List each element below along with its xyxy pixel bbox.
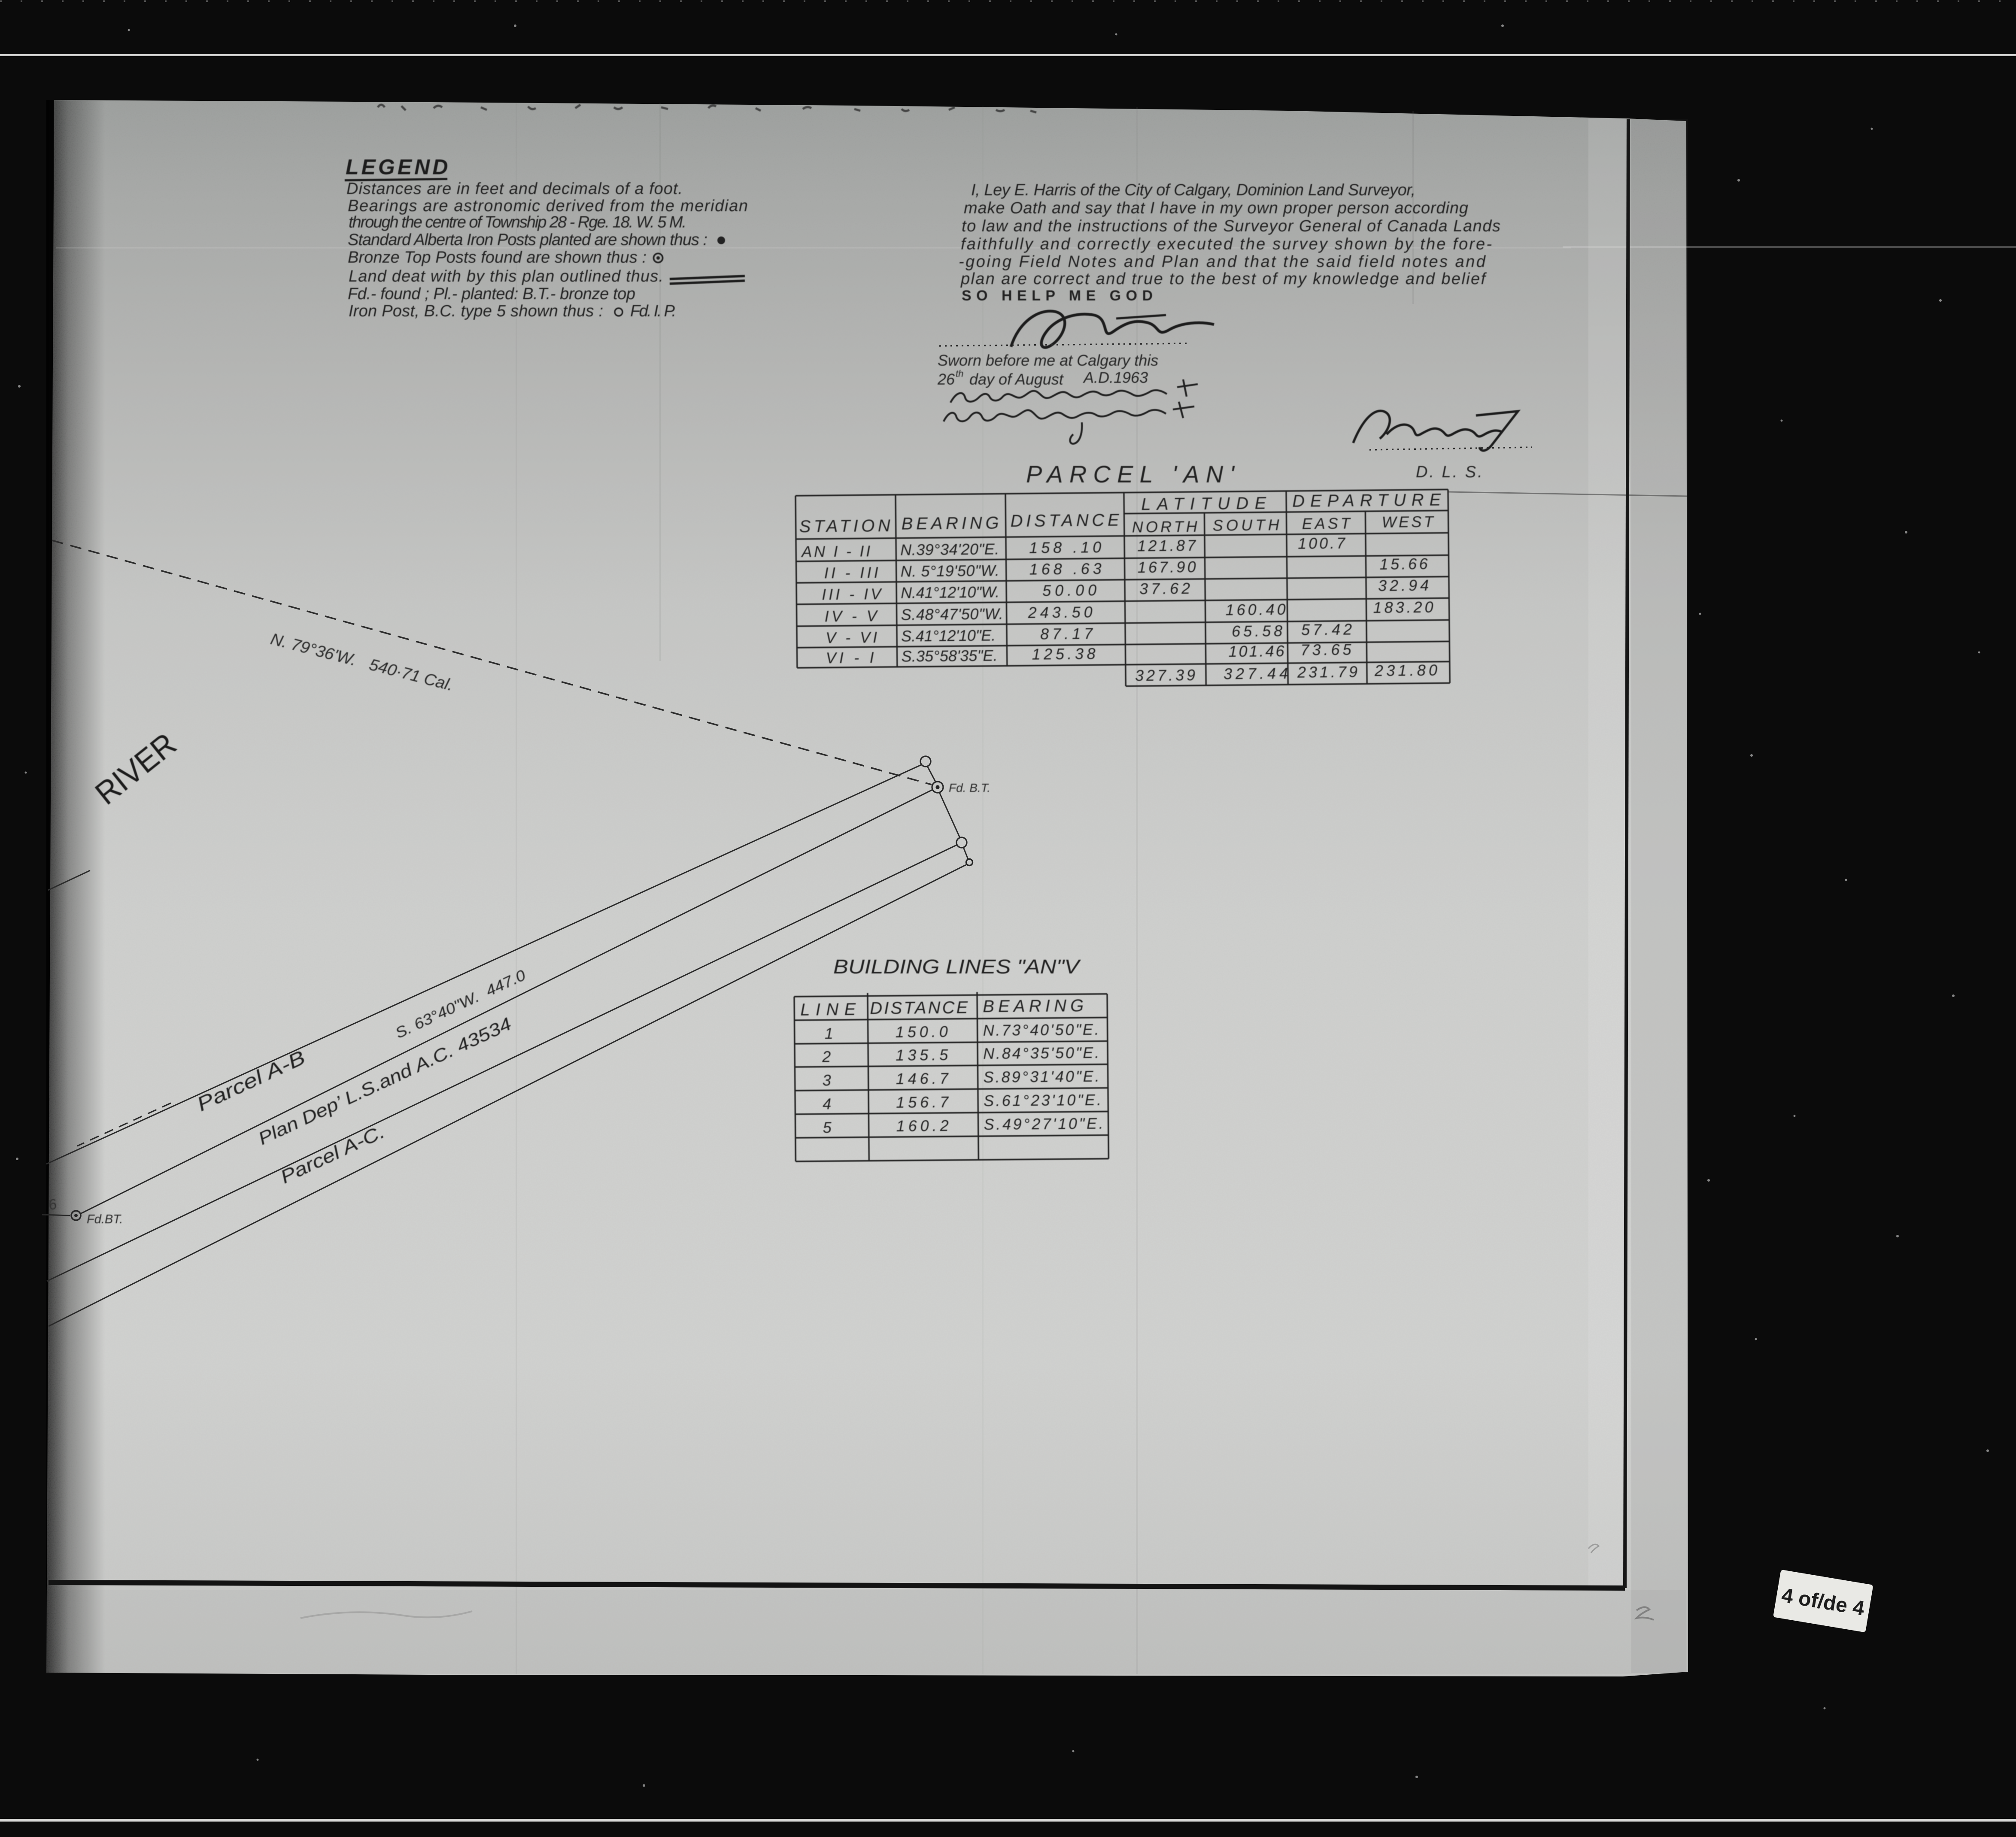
svg-text:DISTANCE: DISTANCE (870, 998, 969, 1018)
svg-text:1: 1 (825, 1025, 833, 1042)
svg-text:150.0: 150.0 (896, 1023, 948, 1041)
svg-text:Fd.- found ; Pl.- planted: B: Fd.- found ; Pl.- planted: B.T.- bronze … (348, 285, 635, 303)
svg-text:S.41°12'10"E.: S.41°12'10"E. (901, 627, 996, 645)
svg-text:LATITUDE: LATITUDE (1141, 494, 1267, 514)
svg-text:N.39°34'20"E.: N.39°34'20"E. (900, 540, 999, 558)
svg-text:LINE: LINE (800, 1000, 856, 1019)
svg-text:SOUTH: SOUTH (1213, 516, 1280, 534)
svg-text:N. 5°19'50"W.: N. 5°19'50"W. (901, 561, 999, 580)
svg-text:2: 2 (822, 1048, 831, 1065)
svg-text:65.58: 65.58 (1232, 622, 1282, 640)
svg-text:N.41°12'10"W.: N.41°12'10"W. (901, 583, 999, 601)
svg-text:to law and the instructions of: to law and the instructions of the Surve… (962, 217, 1500, 235)
svg-text:Iron Post, B.C. type 5 shown t: Iron Post, B.C. type 5 shown thus : (349, 302, 603, 320)
svg-text:NORTH: NORTH (1132, 518, 1198, 536)
svg-text:DISTANCE: DISTANCE (1010, 511, 1120, 530)
svg-text:I, Ley E. Harris of the City o: I, Ley E. Harris of the City of Calgary,… (971, 181, 1415, 199)
svg-text:4: 4 (823, 1095, 831, 1113)
svg-text:37.62: 37.62 (1139, 579, 1190, 597)
svg-text:101.46: 101.46 (1228, 642, 1284, 660)
svg-text:faithfully and correctly execu: faithfully and correctly executed the su… (961, 235, 1492, 253)
svg-text:IV - V: IV - V (825, 607, 878, 625)
svg-text:87.17: 87.17 (1040, 624, 1093, 643)
svg-text:Bearings are astronomic derive: Bearings are astronomic derived from the… (348, 197, 748, 215)
svg-text:Fd.BT.: Fd.BT. (87, 1213, 123, 1226)
svg-text:Standard Alberta Iron Posts pl: Standard Alberta Iron Posts planted are … (348, 231, 707, 249)
svg-text:A.D.1963: A.D.1963 (1083, 369, 1148, 386)
svg-text:Distances are in feet and deci: Distances are in feet and decimals of a … (346, 180, 683, 198)
svg-text:Fd. B.T.: Fd. B.T. (949, 781, 990, 794)
svg-text:Land deat with by this plan ou: Land deat with by this plan outlined thu… (349, 267, 663, 285)
svg-text:15.66: 15.66 (1379, 555, 1428, 573)
svg-text:Bronze Top Posts found are sho: Bronze Top Posts found are shown thus : (348, 249, 647, 267)
svg-text:plan are correct and true to t: plan are correct and true to the best of… (960, 270, 1487, 288)
svg-text:-going Field Notes and Plan an: -going Field Notes and Plan and that the… (959, 253, 1486, 271)
svg-text:57.42: 57.42 (1301, 621, 1352, 639)
svg-text:S.48°47'50"W.: S.48°47'50"W. (901, 605, 1003, 623)
svg-text:3: 3 (823, 1071, 831, 1089)
svg-text:32.94: 32.94 (1378, 576, 1429, 594)
svg-text:day of August: day of August (969, 370, 1064, 388)
svg-text:156.7: 156.7 (896, 1093, 949, 1111)
svg-text:26: 26 (937, 370, 955, 388)
svg-text:135.5: 135.5 (896, 1046, 948, 1064)
svg-text:DEPARTURE: DEPARTURE (1292, 491, 1442, 511)
svg-text:146.7: 146.7 (896, 1070, 949, 1088)
svg-text:BUILDING LINES "AN"V: BUILDING LINES "AN"V (833, 955, 1081, 978)
svg-text:Fd. I. P.: Fd. I. P. (630, 302, 676, 320)
svg-text:73.65: 73.65 (1300, 641, 1351, 659)
svg-text:AN I - II: AN I - II (801, 542, 870, 561)
svg-text:LEGEND: LEGEND (346, 155, 450, 179)
svg-text:make Oath and say that I have: make Oath and say that I have in my own … (964, 199, 1468, 217)
svg-text:III - IV: III - IV (822, 585, 882, 603)
svg-text:WEST: WEST (1381, 513, 1434, 531)
svg-text:D. L. S.: D. L. S. (1416, 463, 1484, 481)
svg-text:160.2: 160.2 (896, 1117, 948, 1135)
svg-text:th: th (956, 368, 963, 379)
svg-text:S.35°58'35"E.: S.35°58'35"E. (901, 647, 997, 665)
svg-text:5: 5 (823, 1119, 832, 1136)
svg-text:through the centre of Township: through the centre of Township 28 - Rge.… (349, 213, 686, 231)
svg-text:50.00: 50.00 (1042, 581, 1096, 599)
svg-text:Sworn before me at Calgary thi: Sworn before me at Calgary this (938, 352, 1158, 369)
svg-text:100.7: 100.7 (1298, 534, 1346, 552)
